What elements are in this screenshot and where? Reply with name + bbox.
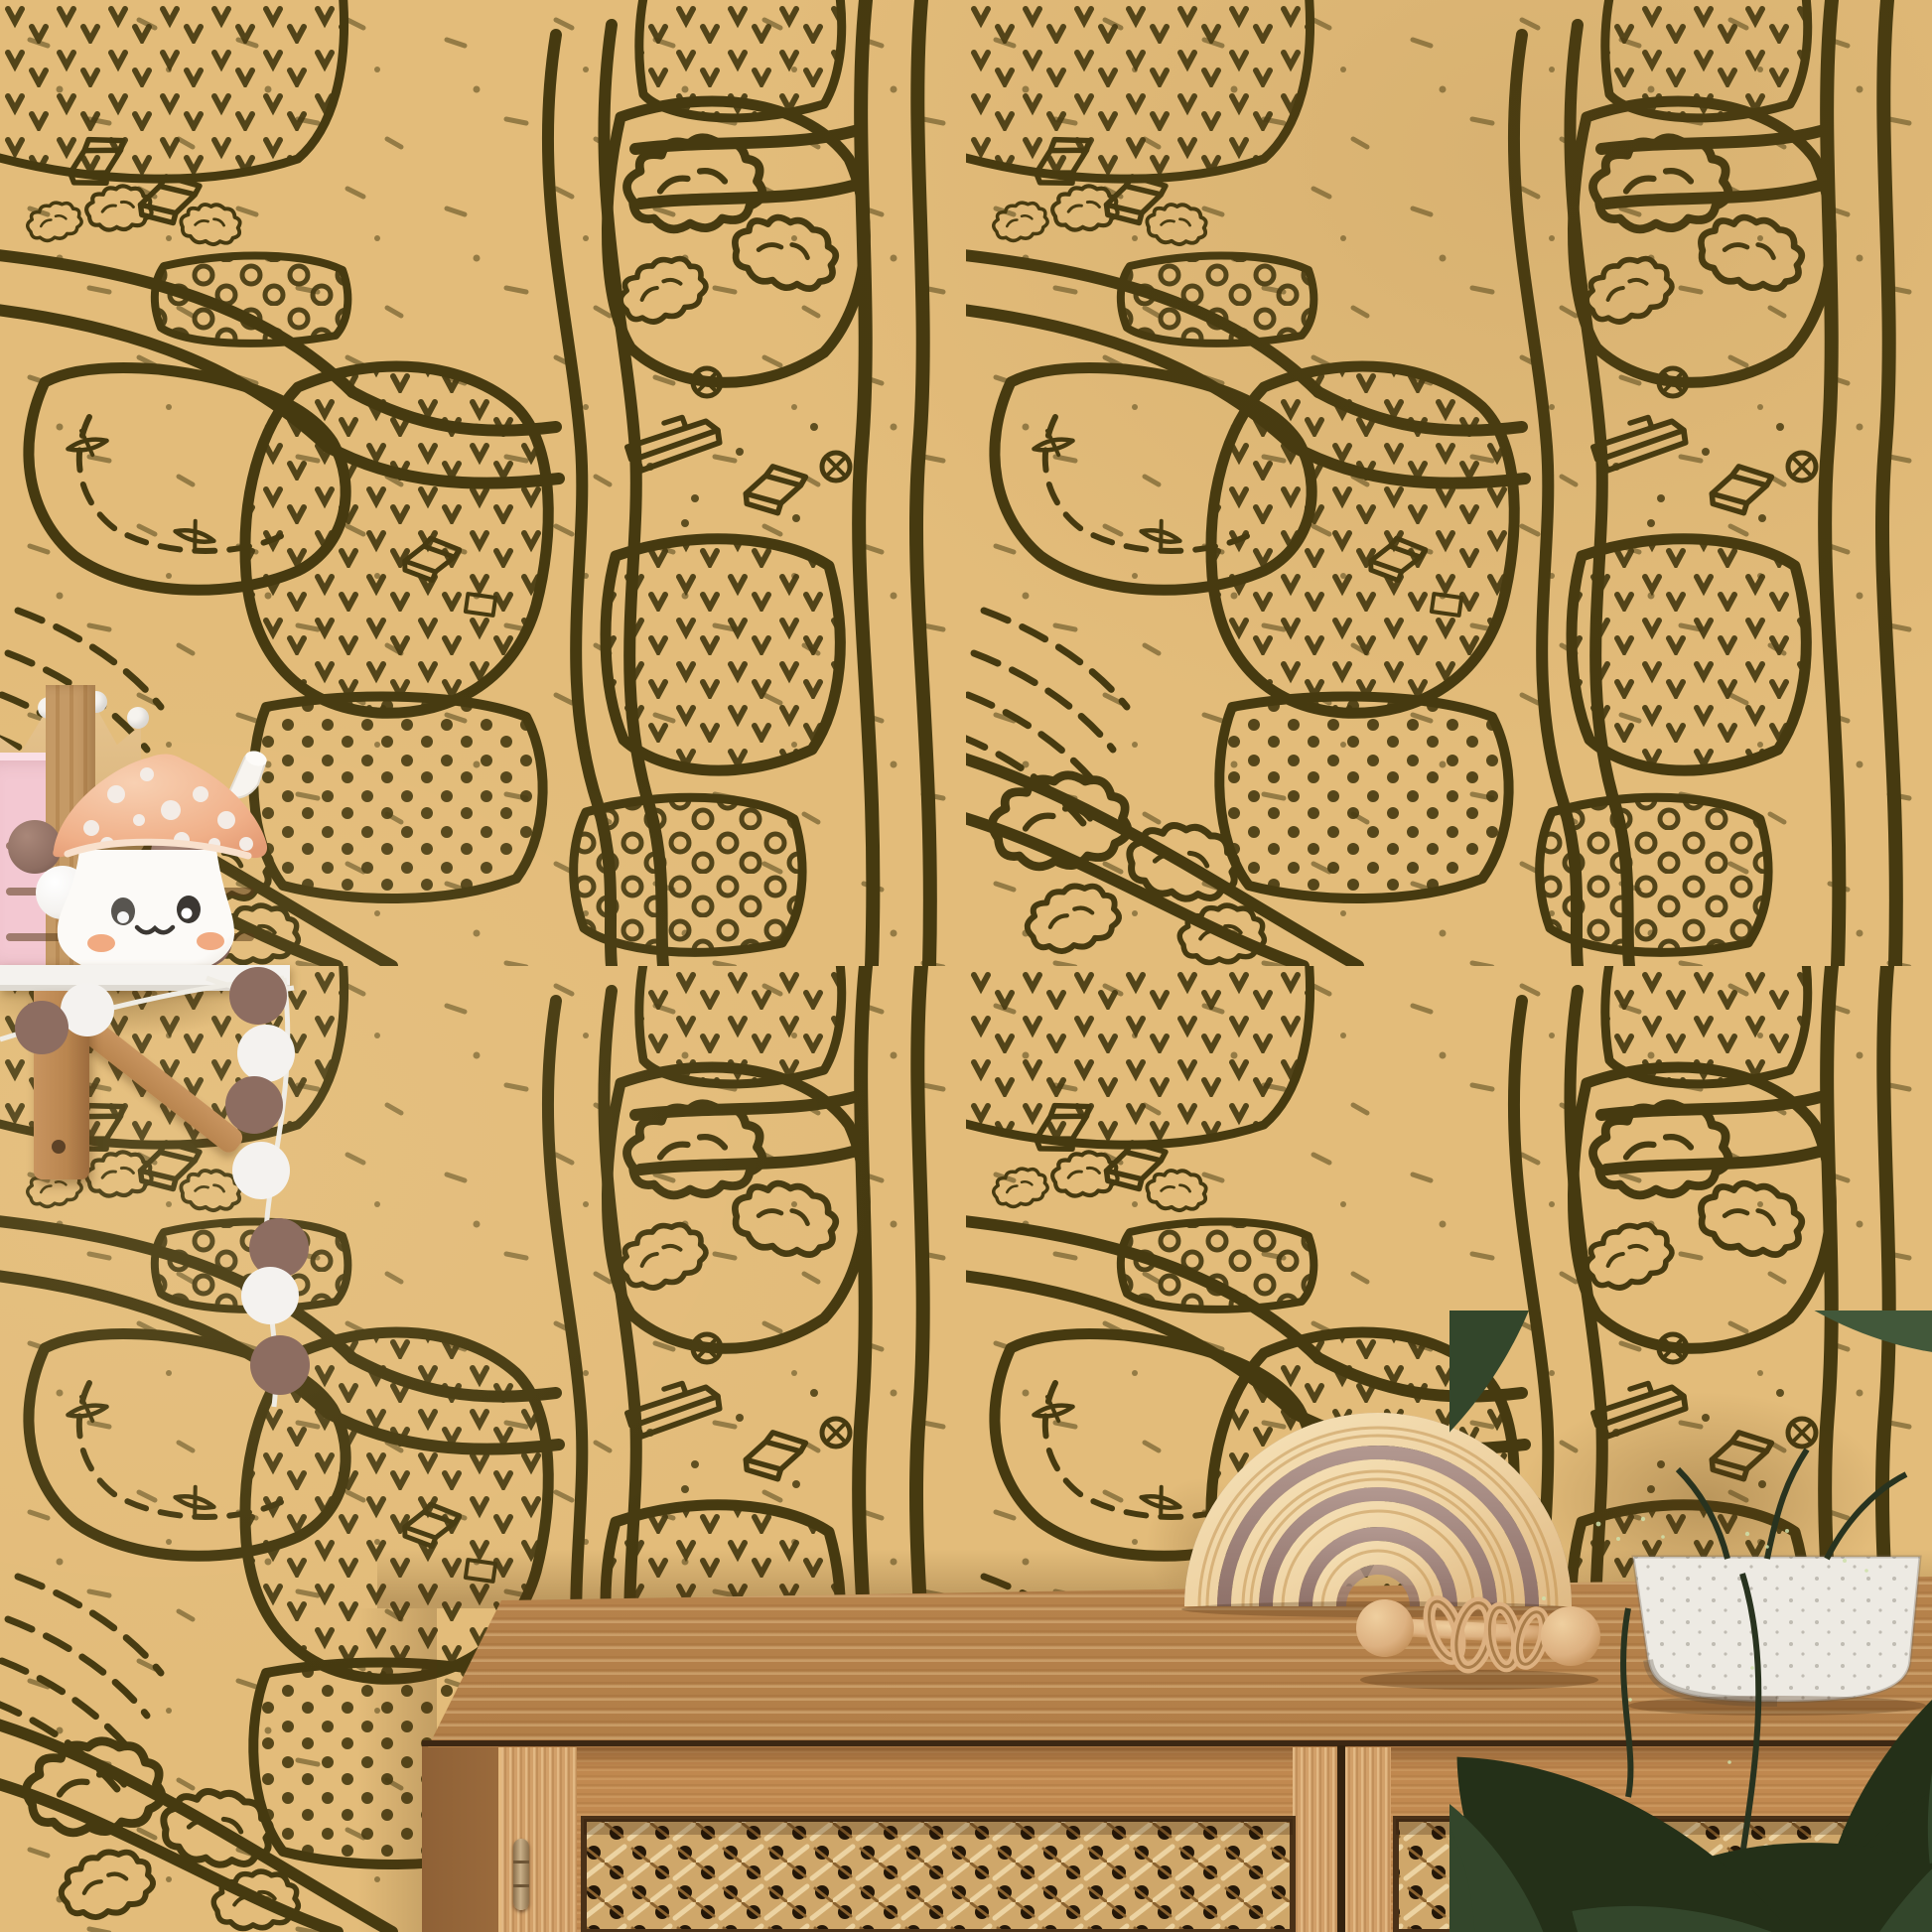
wooden-rattle: [1340, 1581, 1638, 1700]
cane-door-left: [584, 1819, 1293, 1932]
crown-toy-ball: [127, 707, 149, 729]
plant-pot: [1628, 1557, 1926, 1716]
rattle-ball-right: [1541, 1606, 1600, 1666]
pompom-garland: [0, 948, 338, 1425]
garland-beads: [15, 967, 310, 1395]
rattle-shadow: [1360, 1670, 1598, 1690]
door-hinge: [513, 1839, 529, 1910]
rattle-ball-left: [1356, 1599, 1414, 1657]
room-scene: [0, 0, 1932, 1932]
door-gap: [1337, 1745, 1345, 1932]
